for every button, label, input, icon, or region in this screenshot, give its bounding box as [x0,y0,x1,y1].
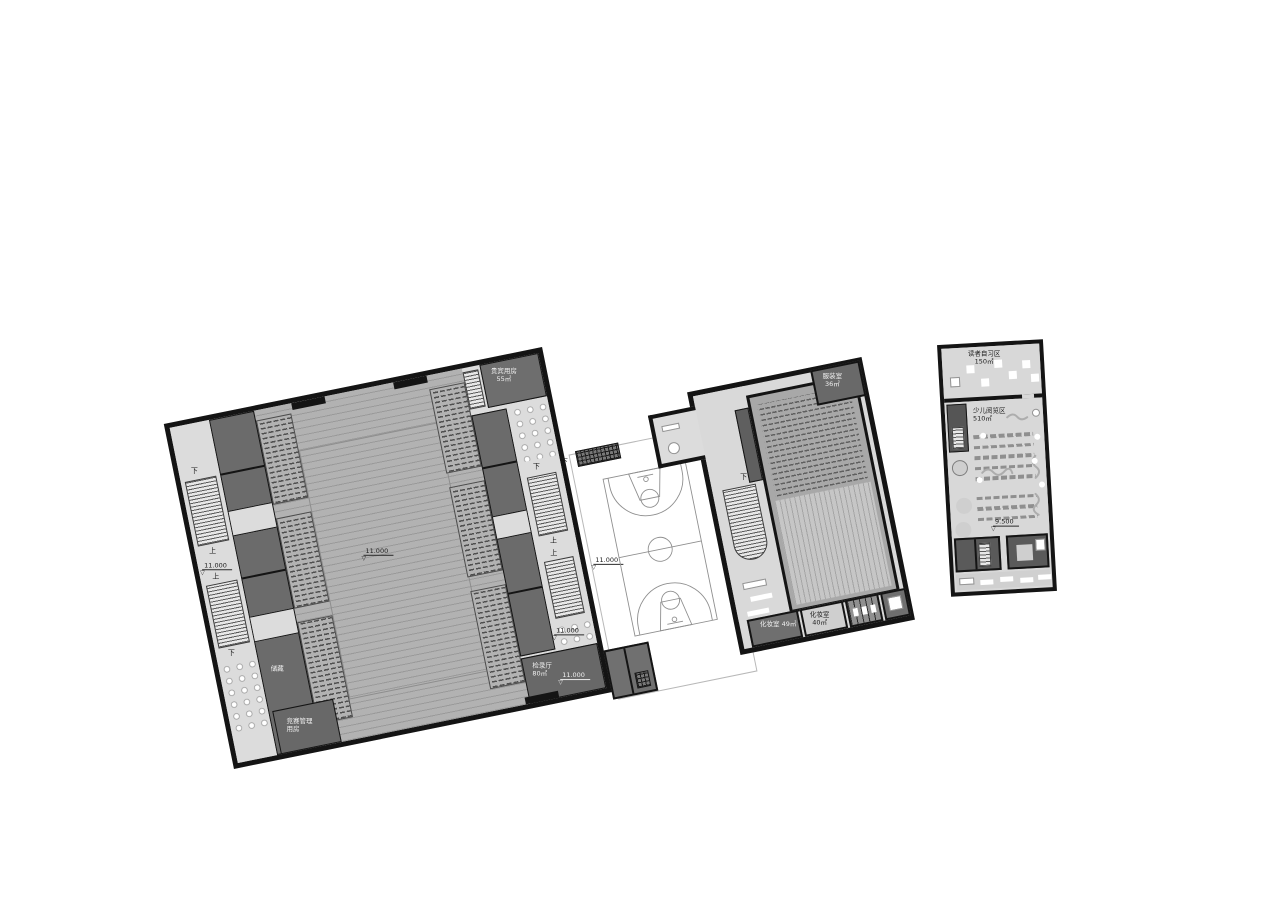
gym-level-marker-east: 11.000▽ [554,626,584,635]
gym-east-stair-2 [544,556,585,619]
court-annex-wall [623,648,634,693]
library-level-marker: 9.500▽ [993,518,1019,527]
gym-level-marker-checkin: 11.000▽ [560,671,590,680]
gym-west-wall-1 [221,465,264,475]
theater-makeup2-label: 化妆室40㎡ [810,611,830,627]
theater-store-room [880,588,911,621]
gym-east-stair2-up-label: 上 [550,550,557,557]
gym-checkin-label: 检录厅80㎡ [532,662,552,678]
gym-east-wall-2 [508,586,542,594]
court-bridge-hatch [575,443,621,467]
gym-west-stair2-up-label: 上 [212,574,219,581]
gym-east-stair-1 [527,472,568,537]
study-tables [951,378,959,386]
library-self-study-label: 读者自习区150㎡ [968,350,1001,366]
site-plan-canvas: 11.000▽ 储藏 下 上 11.000▽ 上 下 [0,0,1280,904]
gym-east-lounge-stools-top [510,400,556,462]
gym-west-wall-2 [242,569,285,579]
level-triangle-icon: ▽ [361,555,366,562]
gym-east-wall-1 [483,460,517,468]
entry-benches [960,579,973,585]
gym-east-stair-down-label: 下 [533,464,540,471]
theater-grand-stair [722,484,770,563]
level-triangle-icon: ▽ [200,569,205,576]
library-service-room-light [1016,544,1033,561]
court-annex-rooms [603,641,658,699]
gymnasium-building: 11.000▽ 储藏 下 上 11.000▽ 上 下 [164,347,612,769]
theater-seating-rows [757,386,868,497]
level-triangle-icon: ▽ [558,679,563,686]
court-annex-hatch [634,670,651,688]
gym-west-stair-2 [206,579,250,648]
lobby-bench [743,580,766,589]
court-stair-down-label: 下 [561,459,568,466]
theater-stage-floor [775,482,892,605]
gym-management-label: 竞赛管理用房 [287,717,313,733]
store-room-light-well [888,596,902,610]
wing-furniture-2 [668,442,680,454]
theater-lobby-down-label: 下 [740,474,747,481]
theater-costume-label: 服装室36㎡ [823,372,843,388]
library-children-area: 少儿阅览区510㎡ [944,397,1049,536]
level-triangle-icon: ▽ [991,526,996,533]
gym-west-opening-1 [228,502,276,536]
gym-storage-label: 储藏 [271,664,284,672]
library-entry-strip [956,569,1051,590]
gym-west-opening-2 [250,608,298,642]
library-service-east [1006,533,1050,569]
basketball-court [598,458,722,641]
library-service-wall [974,539,977,569]
toilet-fixture [853,608,859,617]
library-service-west [954,536,1002,573]
library-service-fixture [1036,539,1045,549]
gym-vip-room-label: 贵宾用房55㎡ [491,367,517,383]
library-building: 读者自习区150㎡ 少儿阅览区510㎡ [937,339,1057,597]
gym-west-stair2-down-label: 下 [228,650,235,657]
level-triangle-icon: ▽ [552,634,557,641]
gym-level-marker-center: 11.000▽ [363,547,393,556]
theater-toilet-room [845,593,884,627]
gym-west-stair-down-label: 下 [191,468,198,475]
library-service-stair [978,542,991,567]
gym-level-marker-west: 11.000▽ [202,561,232,570]
wing-furniture [662,424,678,431]
gym-east-opening [493,509,531,539]
gym-east-stair-up-label: 上 [550,538,557,545]
level-triangle-icon: ▽ [591,564,596,571]
theater-makeup1-label: 化妆室 49㎡ [760,620,796,628]
library-self-study-area: 读者自习区150㎡ [941,343,1042,398]
gym-west-stair-up-label: 上 [209,548,216,555]
